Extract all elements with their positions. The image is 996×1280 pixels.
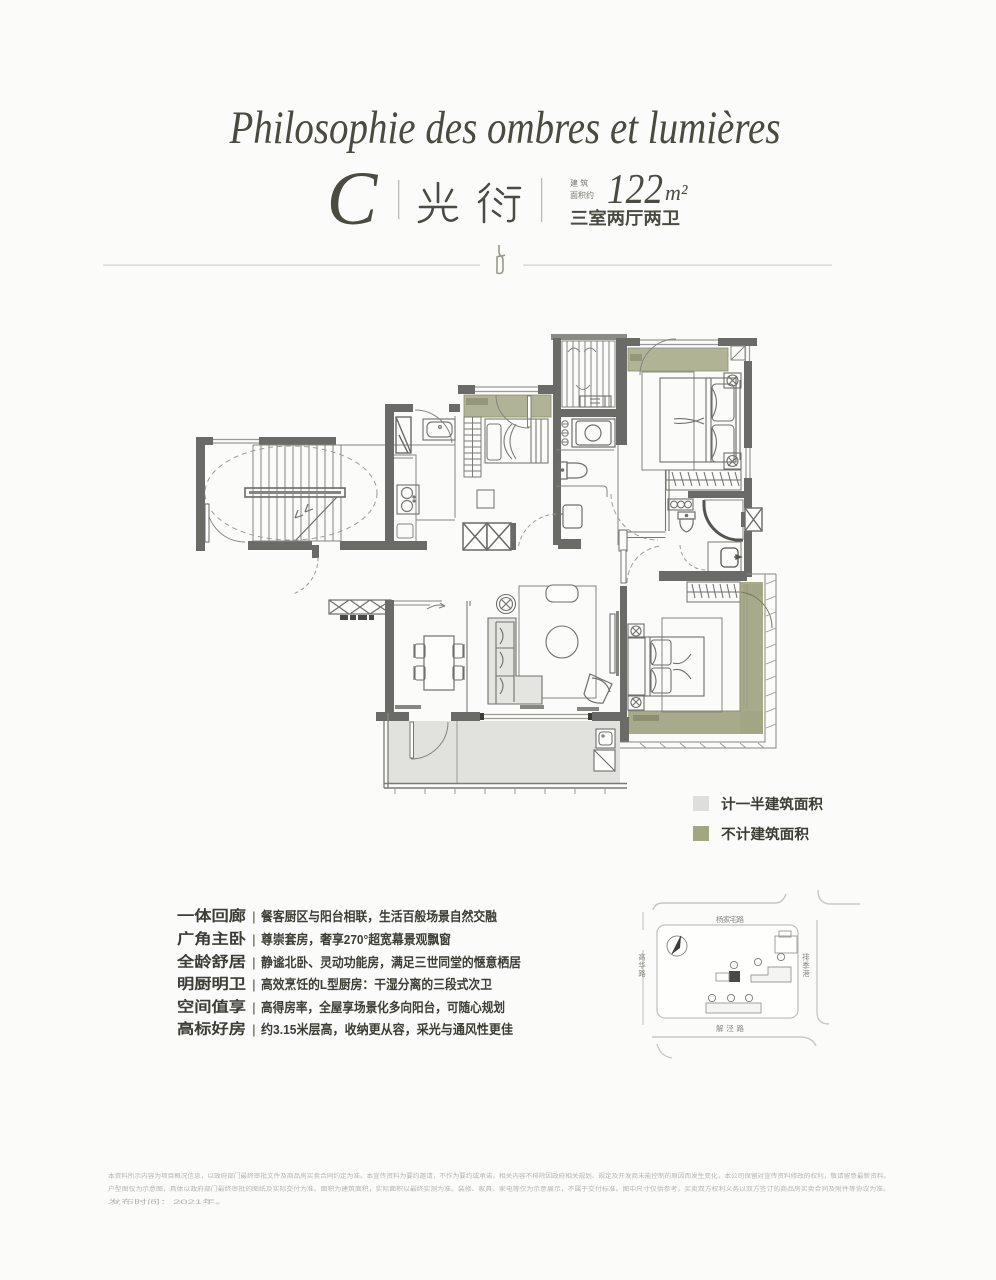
svg-text:发布时间：2021年。: 发布时间：2021年。 xyxy=(108,1198,228,1206)
svg-text:高标好房|约3.15米层高，收纳更从容，采光与通风性更佳: 高标好房|约3.15米层高，收纳更从容，采光与通风性更佳 xyxy=(177,1020,513,1038)
svg-text:C: C xyxy=(327,157,379,241)
svg-text:m²: m² xyxy=(665,180,688,205)
svg-text:广角主卧|尊崇套房，奢享270°超宽幕景观飘窗: 广角主卧|尊崇套房，奢享270°超宽幕景观飘窗 xyxy=(177,930,451,948)
svg-text:一体回廊|餐客厨区与阳台相联，生活百般场景自然交融: 一体回廊|餐客厨区与阳台相联，生活百般场景自然交融 xyxy=(177,907,497,925)
svg-text:全龄舒居|静谧北卧、灵动功能房，满足三世同堂的惬意栖居: 全龄舒居|静谧北卧、灵动功能房，满足三世同堂的惬意栖居 xyxy=(176,953,521,971)
svg-text:建 筑: 建 筑 xyxy=(570,178,588,188)
svg-text:Philosophie des ombres et lumi: Philosophie des ombres et lumières xyxy=(229,102,781,154)
svg-text:解泾路: 解泾路 xyxy=(716,1023,745,1033)
svg-text:排季港: 排季港 xyxy=(801,952,810,979)
svg-text:计一半建筑面积: 计一半建筑面积 xyxy=(721,796,823,812)
svg-text:不计建筑面积: 不计建筑面积 xyxy=(721,826,809,842)
svg-text:高华路: 高华路 xyxy=(637,952,646,978)
svg-text:122: 122 xyxy=(607,167,663,213)
svg-text:杨家宅路: 杨家宅路 xyxy=(716,914,745,924)
svg-text:面积约: 面积约 xyxy=(570,190,594,200)
svg-text:空间值享|高得房率，全屋享场景化多向阳台，可随心规划: 空间值享|高得房率，全屋享场景化多向阳台，可随心规划 xyxy=(177,998,505,1016)
svg-text:明厨明卫|高效烹饪的L型厨房：干湿分离的三段式次卫: 明厨明卫|高效烹饪的L型厨房：干湿分离的三段式次卫 xyxy=(177,976,492,993)
svg-text:本資料所示内容为项目概况信息，以政府部门最终审批文件及商品房: 本資料所示内容为项目概况信息，以政府部门最终审批文件及商品房买卖合同约定为准。本… xyxy=(108,1172,890,1180)
svg-text:三室两厅两卫: 三室两厅两卫 xyxy=(570,208,680,228)
svg-text:户型图仅为示意图，具体以政府部门最终审批的图纸及实际交付为准: 户型图仅为示意图，具体以政府部门最终审批的图纸及实际交付为准。面积为建筑面积，实… xyxy=(108,1185,890,1193)
